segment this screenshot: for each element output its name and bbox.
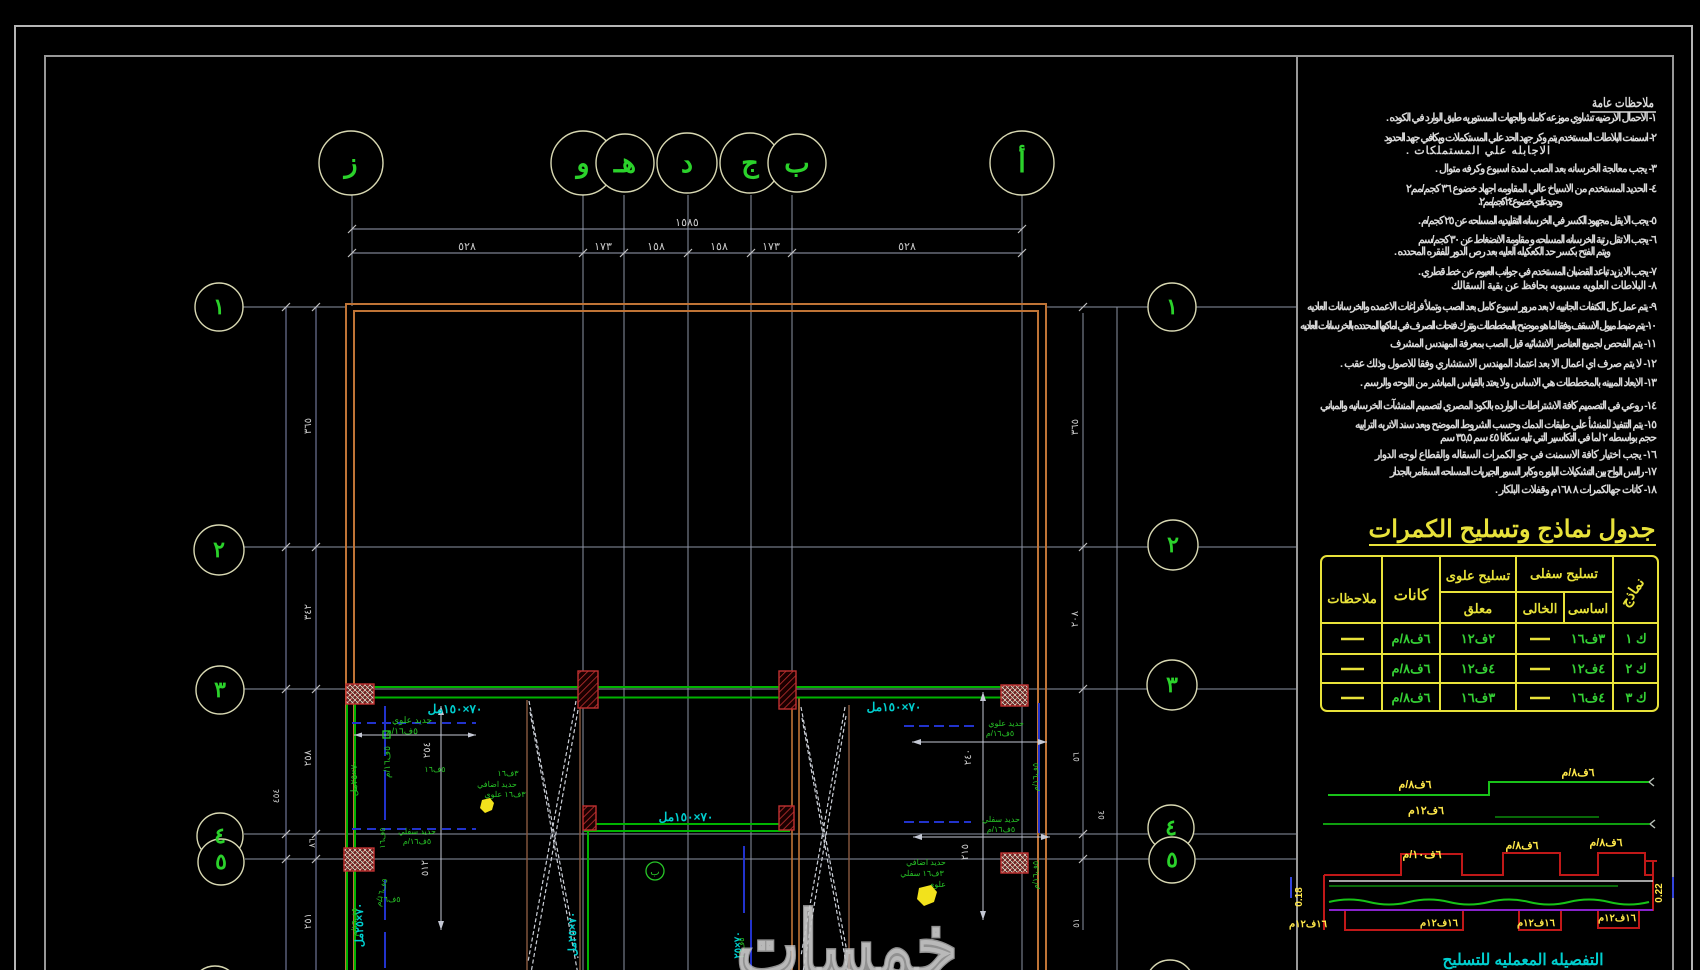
svg-text:١٧٣: ١٧٣ (594, 241, 612, 253)
svg-text:٦ف٨/م: ٦ف٨/م (1561, 767, 1594, 779)
svg-text:٢- اسمنت البلاطات المستخدم يتم: ٢- اسمنت البلاطات المستخدم يتم وكر جهد ا… (1384, 132, 1657, 145)
svg-text:٥ف١٦: ٥ف١٦ (379, 895, 400, 904)
svg-text:ويتم الفتح بكسر حد الكعكيله ال: ويتم الفتح بكسر حد الكعكيله العليه بعد ر… (1394, 246, 1611, 258)
svg-text:٥٢٨: ٥٢٨ (458, 241, 476, 253)
svg-text:٤: ٤ (1165, 815, 1177, 840)
svg-text:كانات: كانات (1394, 587, 1429, 604)
svg-text:٣: ٣ (214, 677, 226, 702)
svg-text:١٣- الابعاد المبينه بالمخططات: ١٣- الابعاد المبينه بالمخططات هي الاساس … (1360, 377, 1657, 390)
svg-text:٥ف١٦/م: ٥ف١٦/م (987, 825, 1015, 834)
svg-text:ملاحظات عامة: ملاحظات عامة (1592, 95, 1654, 110)
svg-text:٥ف١٦/م: ٥ف١٦/م (1031, 763, 1040, 791)
svg-text:هـ: هـ (613, 148, 636, 178)
svg-text:١٤- روعي في التصميم كافة الاشت: ١٤- روعي في التصميم كافة الاشتراطات الوا… (1320, 398, 1657, 413)
svg-text:٥ف١٦/م: ٥ف١٦/م (382, 746, 393, 778)
svg-text:٢٠٨: ٢٠٨ (1070, 610, 1081, 627)
svg-text:٢ف١٢: ٢ف١٢ (1461, 631, 1495, 646)
svg-text:خمسات: خمسات (737, 894, 958, 970)
svg-text:٦- يجب الا تقل رتبة الخرسانه ا: ٦- يجب الا تقل رتبة الخرسانه المسلحه و م… (1418, 234, 1657, 246)
svg-text:حديد سفلي: حديد سفلي (982, 815, 1020, 824)
svg-text:ك ٢: ك ٢ (1625, 661, 1646, 676)
svg-text:حديد علوي: حديد علوي (392, 715, 432, 726)
svg-text:١- الاحمال الارضيه تشاوي موزعه: ١- الاحمال الارضيه تشاوي موزعه كامله وال… (1386, 112, 1657, 125)
svg-text:تسليح سفلى: تسليح سفلى (1530, 566, 1598, 582)
svg-text:١٦ف١٢م: ١٦ف١٢م (1598, 913, 1637, 924)
svg-text:١٦ف١٢م: ١٦ف١٢م (1517, 918, 1556, 929)
svg-text:٣٤٢: ٣٤٢ (303, 604, 314, 620)
svg-text:٥ف١٦/م: ٥ف١٦/م (386, 726, 418, 737)
svg-text:أ: أ (1018, 145, 1026, 178)
svg-text:٥ف١٦: ٥ف١٦ (424, 765, 445, 774)
svg-text:١٥- يتم التنفيذ للمنشأ علي طبق: ١٥- يتم التنفيذ للمنشأ علي طبقات الدمك و… (1355, 417, 1657, 432)
svg-text:و: و (574, 148, 589, 180)
svg-text:١: ١ (1166, 294, 1178, 319)
svg-text:٢٥٨: ٢٥٨ (303, 749, 314, 766)
svg-text:١٦ف١٢م: ١٦ف١٢م (1289, 919, 1328, 930)
svg-text:الاجابله علي المستملكات .: الاجابله علي المستملكات . (1406, 145, 1550, 158)
svg-text:٥ف١٦/م: ٥ف١٦/م (403, 837, 431, 846)
svg-text:٧- يجب الا يزيد تباعد القضبان: ٧- يجب الا يزيد تباعد القضبان المستخدم ف… (1418, 266, 1657, 279)
svg-text:٣- يجب معالجة الخرسانه بعد الص: ٣- يجب معالجة الخرسانه بعد الصب لمدة اسب… (1435, 163, 1657, 175)
svg-text:د: د (681, 148, 693, 178)
svg-text:٢: ٢ (1167, 532, 1179, 557)
svg-text:٤ف١٢: ٤ف١٢ (1461, 661, 1495, 676)
svg-text:حديد سفلي: حديد سفلي (398, 827, 436, 836)
svg-text:٣: ٣ (1166, 672, 1178, 697)
svg-text:٧٠×١٥٠مل: ٧٠×١٥٠مل (867, 700, 922, 714)
svg-text:وحديد عادي خضوع ٢٤ كجم/مم٢ .: وحديد عادي خضوع ٢٤ كجم/مم٢ . (1478, 196, 1563, 209)
svg-text:جدول نماذج وتسليح الكمرات: جدول نماذج وتسليح الكمرات (1369, 516, 1656, 544)
svg-text:٢: ٢ (213, 537, 225, 562)
svg-text:٦ف٨/م: ٦ف٨/م (1391, 690, 1430, 706)
svg-text:ملاحظات: ملاحظات (1327, 591, 1377, 606)
svg-text:١٥٨: ١٥٨ (647, 241, 665, 253)
svg-text:٦ف٨/م: ٦ف٨/م (1398, 779, 1431, 791)
svg-text:٧٠×١٥٠مل: ٧٠×١٥٠مل (428, 702, 483, 716)
svg-text:ج: ج (741, 148, 759, 180)
svg-text:٦ف١٢م: ٦ف١٢م (1408, 805, 1444, 817)
svg-text:٦ف٨/م: ٦ف٨/م (1391, 631, 1430, 647)
svg-text:٢١٥: ٢١٥ (960, 844, 971, 860)
svg-text:٥١٢: ٥١٢ (420, 860, 431, 876)
svg-text:٢٥٤: ٢٥٤ (422, 742, 433, 758)
svg-text:٧٠×٢٥مل: ٧٠×٢٥مل (349, 760, 359, 796)
svg-text:٤: ٤ (214, 823, 226, 848)
svg-text:٥ف١٦/م: ٥ف١٦/م (1031, 861, 1040, 889)
svg-text:حجم بواسطه ٢ لما في التكاسير ا: حجم بواسطه ٢ لما في التكاسير التي تليه س… (1440, 432, 1657, 445)
svg-text:٥ف١٦/م: ٥ف١٦/م (350, 908, 359, 936)
svg-text:٢٤٠: ٢٤٠ (963, 749, 974, 765)
svg-text:٥٤: ٥٤ (1096, 810, 1106, 820)
svg-text:١٨- كانات جهالكمرات ٨ ١٦٨م وقف: ١٨- كانات جهالكمرات ٨ ١٦٨م وقفلات البلكا… (1495, 484, 1657, 496)
svg-text:١٥٨٥: ١٥٨٥ (675, 217, 699, 229)
svg-text:٩- يتم عمل كل الكتفات الجانبيه: ٩- يتم عمل كل الكتفات الجانبيه لا بعد مر… (1307, 299, 1657, 313)
svg-text:حديد اضافي: حديد اضافي (906, 858, 946, 867)
svg-text:٣ف١٦: ٣ف١٦ (1571, 631, 1605, 646)
svg-text:٤- الحديد المستخدم من الاسياخ: ٤- الحديد المستخدم من الاسياخ عالي المقا… (1406, 183, 1657, 196)
svg-text:0.22: 0.22 (1654, 883, 1665, 903)
svg-text:٦ف٨/م: ٦ف٨/م (1589, 837, 1622, 849)
svg-text:٨- البلاطات العلويه مسبوبه بحا: ٨- البلاطات العلويه مسبوبه بحافظ عن بقية… (1451, 280, 1657, 292)
svg-text:ب: ب (650, 867, 659, 878)
svg-text:٣ف١٦ علوي: ٣ف١٦ علوي (484, 790, 526, 799)
svg-text:١١- يتم الفحص لجميع العناصر ال: ١١- يتم الفحص لجميع العناصر الانشائيه قب… (1390, 338, 1657, 350)
svg-text:٦ف٨/م: ٦ف٨/م (1391, 661, 1430, 677)
svg-text:٧٠×١٥٠مل: ٧٠×١٥٠مل (659, 810, 714, 824)
svg-text:ك ١: ك ١ (1625, 631, 1646, 646)
svg-text:الخالى: الخالى (1523, 601, 1558, 616)
svg-text:٦ف٨/م: ٦ف٨/م (1505, 840, 1538, 852)
svg-text:٧٠×٢٥مل: ٧٠×٢٥مل (567, 912, 579, 956)
svg-text:٤٥٤: ٤٥٤ (271, 789, 281, 804)
svg-text:٥: ٥ (215, 849, 227, 874)
svg-text:ك ٣: ك ٣ (1625, 690, 1646, 705)
svg-text:٥- يجب الا يقل مجهود الكسر في: ٥- يجب الا يقل مجهود الكسر في الخرسانه ا… (1418, 215, 1657, 228)
svg-text:معلق: معلق (1464, 601, 1492, 617)
svg-text:٤ف١٦: ٤ف١٦ (1571, 690, 1605, 705)
svg-text:٣ف١٦: ٣ف١٦ (497, 769, 519, 778)
svg-text:١٧٣: ١٧٣ (762, 241, 780, 253)
svg-text:0.18: 0.18 (1294, 887, 1305, 907)
svg-text:٣ف١٦ سفلي: ٣ف١٦ سفلي (900, 869, 944, 878)
svg-text:١٠- يتم ضبط ميول الاسقف وفقا ل: ١٠- يتم ضبط ميول الاسقف وفقا لما هو موضح… (1300, 320, 1657, 333)
svg-text:١٥٨: ١٥٨ (710, 241, 728, 253)
svg-text:٥: ٥ (1166, 847, 1178, 872)
svg-text:١٢- لا يتم صرف اي اعمال الا بع: ١٢- لا يتم صرف اي اعمال الا بعد اعتماد ا… (1340, 358, 1657, 371)
svg-text:٥٢٨: ٥٢٨ (898, 241, 916, 253)
svg-text:١٦- يجب اختيار كافة الاسمنت في: ١٦- يجب اختيار كافة الاسمنت في جو الكمرا… (1374, 449, 1657, 462)
svg-text:٣ف١٦: ٣ف١٦ (1461, 690, 1495, 705)
svg-text:٥ف١٦/م: ٥ف١٦/م (986, 729, 1014, 738)
svg-text:٦ف١٠/م: ٦ف١٠/م (1402, 849, 1441, 861)
svg-text:٤ف١٢: ٤ف١٢ (1571, 661, 1605, 676)
svg-text:التفصيله المعمليه للتسليح: التفصيله المعمليه للتسليح (1443, 952, 1604, 970)
svg-text:٨٦: ٨٦ (307, 838, 317, 848)
svg-text:تسليح علوى: تسليح علوى (1446, 568, 1511, 584)
svg-text:٢٥١: ٢٥١ (303, 913, 314, 929)
svg-text:٣٦٥: ٣٦٥ (303, 418, 314, 434)
svg-text:٣٦٥: ٣٦٥ (1070, 419, 1081, 435)
svg-text:اساسى: اساسى (1568, 601, 1608, 616)
svg-text:١٧- رالس الواح بين التشكيلات ا: ١٧- رالس الواح بين التشكيلات البلوره وكا… (1389, 466, 1657, 478)
svg-text:١٦ف١٢م: ١٦ف١٢م (1420, 918, 1459, 929)
svg-text:٥ف١٦: ٥ف١٦ (378, 827, 387, 848)
svg-text:ز: ز (342, 148, 357, 180)
svg-text:حديد علوي: حديد علوي (988, 719, 1024, 728)
svg-text:٥١: ٥١ (1071, 918, 1081, 928)
svg-text:١: ١ (213, 294, 225, 319)
svg-text:ب: ب (784, 148, 809, 178)
svg-text:حديد اضافي: حديد اضافي (477, 780, 517, 789)
svg-text:٥٦: ٥٦ (1071, 752, 1081, 762)
